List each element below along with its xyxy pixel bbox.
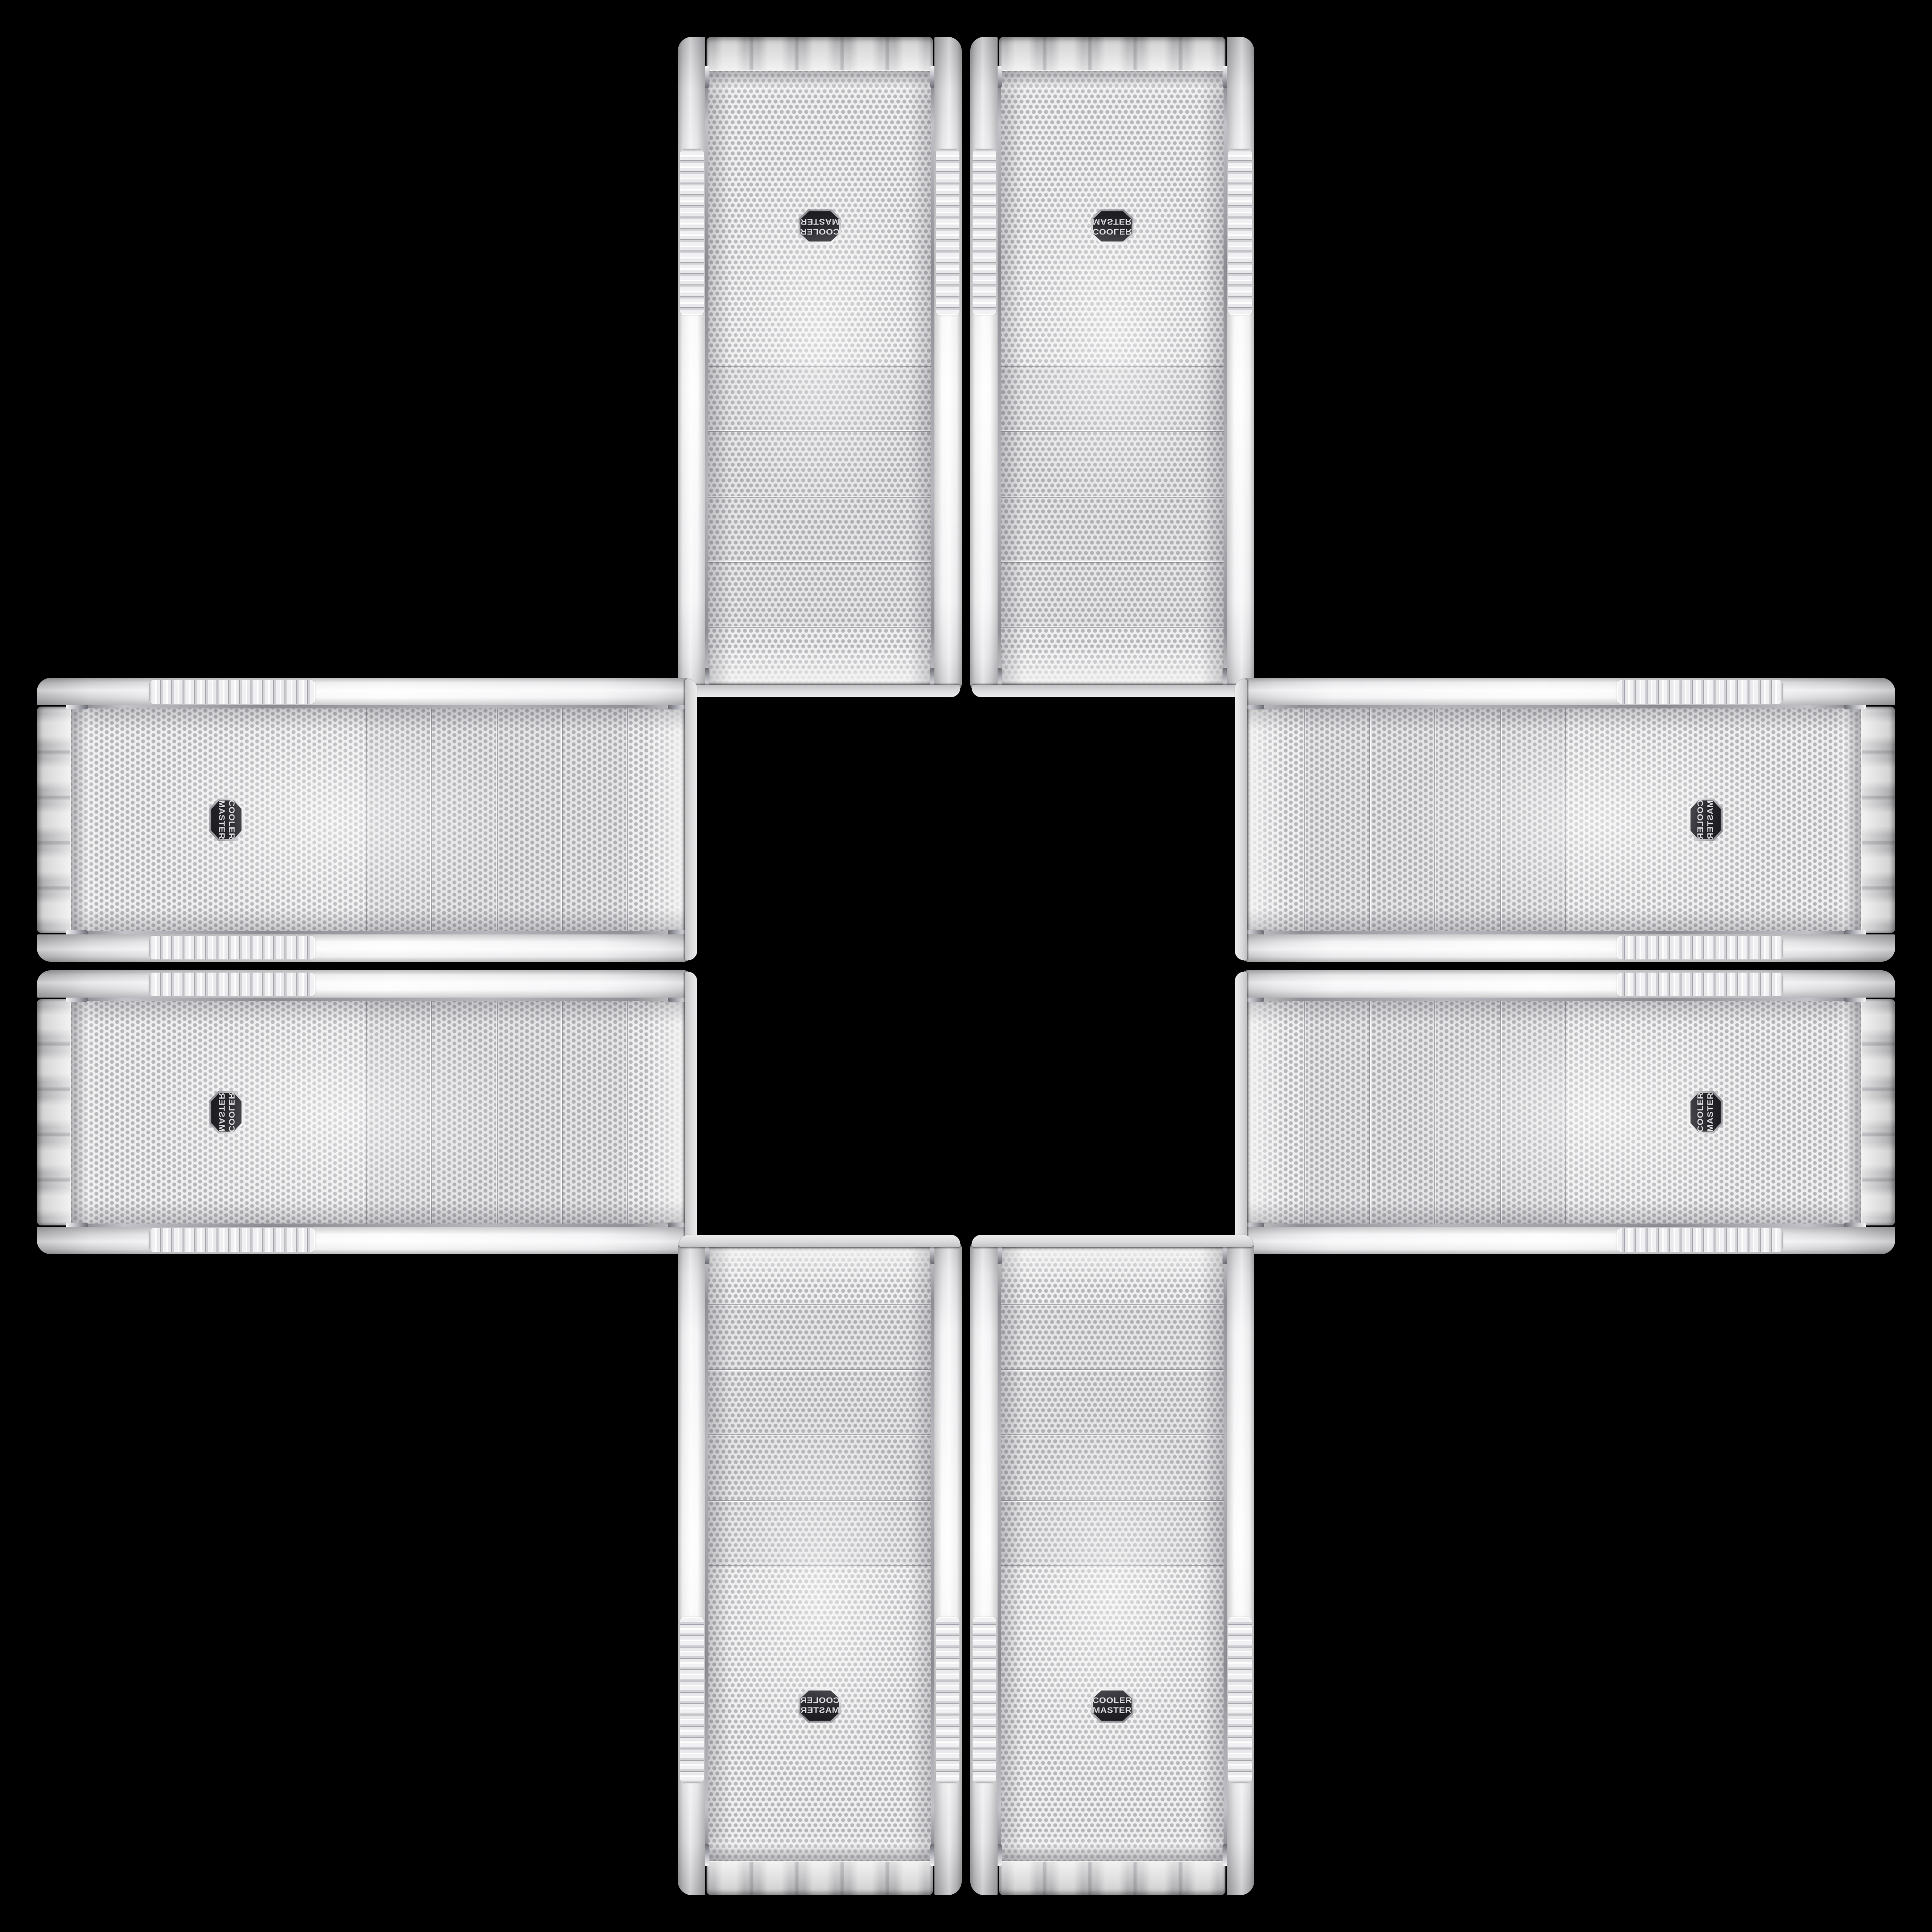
- faceted-outer-cap: [707, 1861, 933, 1895]
- logo-text-line1: COOLER: [227, 800, 235, 840]
- front-mesh-panel: COOLER MASTER: [1247, 708, 1861, 931]
- cooler-master-logo: COOLER MASTER: [209, 799, 243, 841]
- logo-text-line1: COOLER: [1092, 227, 1132, 235]
- cooler-master-logo: COOLER MASTER: [209, 1091, 243, 1133]
- grip-ribs-right: [680, 149, 704, 315]
- faceted-outer-cap: [37, 707, 71, 933]
- chrome-trim-groove-left: [1244, 705, 1864, 708]
- logo-text-line1: COOLER: [1696, 800, 1705, 840]
- logo-text-line2: MASTER: [1092, 217, 1132, 225]
- drive-bay-cover: [1304, 708, 1369, 931]
- logo-face: COOLER MASTER: [1093, 211, 1132, 241]
- side-rail-left: [37, 1227, 691, 1254]
- drive-bay-covers: [708, 1304, 931, 1566]
- chrome-trim-groove-right: [1244, 931, 1864, 934]
- chrome-trim-groove-right: [68, 998, 688, 1001]
- drive-bay-cover: [1369, 1001, 1435, 1224]
- mesh-roll-edge: [1247, 708, 1287, 931]
- drive-bay-covers: [708, 366, 931, 628]
- front-mesh-panel: COOLER MASTER: [708, 71, 931, 685]
- mesh-roll-edge-outer: [71, 1001, 98, 1224]
- grip-ribs-left: [936, 1617, 959, 1783]
- grip-ribs-right: [680, 1617, 704, 1783]
- grip-ribs-left: [936, 149, 959, 315]
- drive-bay-covers: [366, 708, 628, 931]
- drive-bay-cover: [1001, 1434, 1224, 1500]
- cooler-master-logo: COOLER MASTER: [1091, 209, 1133, 243]
- chrome-trim-groove-left: [998, 1244, 1001, 1864]
- drive-bay-cover: [708, 498, 931, 563]
- grip-ribs-right: [149, 936, 315, 959]
- chrome-trim-groove-left: [931, 68, 934, 688]
- faceted-outer-cap: [1861, 999, 1895, 1225]
- drive-bay-cover: [1001, 1304, 1224, 1369]
- drive-bay-cover: [708, 1434, 931, 1500]
- logo-face: COOLER MASTER: [211, 800, 241, 839]
- drive-bay-cover: [1001, 563, 1224, 629]
- drive-bay-cover: [1434, 708, 1500, 931]
- inner-end-band: [972, 1235, 1253, 1247]
- grip-ribs-left: [149, 1228, 315, 1252]
- mesh-roll-edge-outer: [1834, 708, 1861, 931]
- side-rail-left: [970, 1241, 998, 1895]
- grip-ribs-left: [973, 1617, 996, 1783]
- side-rail-right: [1241, 970, 1895, 998]
- drive-bay-cover: [708, 1369, 931, 1435]
- logo-text-line1: COOLER: [800, 1696, 840, 1705]
- chrome-trim-groove-left: [931, 1244, 934, 1864]
- drive-bay-cover: [1500, 708, 1566, 931]
- inner-end-band: [1235, 679, 1247, 960]
- faceted-outer-cap: [37, 999, 71, 1225]
- mesh-roll-edge: [1247, 1001, 1287, 1224]
- front-mesh-panel: COOLER MASTER: [1247, 1001, 1861, 1224]
- side-rail-left: [934, 1241, 962, 1895]
- drive-bay-cover: [708, 1500, 931, 1566]
- drive-bay-cover: [708, 1304, 931, 1369]
- grip-ribs-left: [149, 680, 315, 704]
- cooler-master-logo: COOLER MASTER: [1689, 1091, 1723, 1133]
- side-rail-right: [1227, 37, 1254, 691]
- side-rail-right: [678, 1241, 705, 1895]
- grip-ribs-left: [1617, 1228, 1783, 1252]
- faceted-outer-cap: [999, 37, 1225, 71]
- mesh-roll-edge-outer: [71, 708, 98, 931]
- drive-bay-cover: [1001, 1369, 1224, 1435]
- drive-bay-cover: [498, 708, 563, 931]
- grip-ribs-right: [1617, 973, 1783, 996]
- logo-face: COOLER MASTER: [211, 1093, 241, 1132]
- logo-text-line1: COOLER: [800, 227, 840, 235]
- mesh-roll-edge: [645, 1001, 685, 1224]
- mesh-roll-edge-outer: [1834, 1001, 1861, 1224]
- drive-bay-cover: [1500, 1001, 1566, 1224]
- drive-bay-cover: [498, 1001, 563, 1224]
- logo-text-line1: COOLER: [227, 1092, 235, 1132]
- side-rail-right: [1227, 1241, 1254, 1895]
- drive-bay-cover: [1304, 1001, 1369, 1224]
- drive-bay-cover: [433, 1001, 498, 1224]
- chrome-trim-groove-left: [68, 1224, 688, 1227]
- grip-ribs-right: [1228, 1617, 1252, 1783]
- case-left-bottom: COOLER MASTER: [37, 970, 697, 1254]
- mesh-roll-edge: [645, 708, 685, 931]
- drive-bay-cover: [1001, 498, 1224, 563]
- drive-bay-cover: [1369, 708, 1435, 931]
- drive-bay-cover: [366, 1001, 433, 1224]
- chrome-trim-groove-right: [705, 68, 708, 688]
- chrome-trim-groove-left: [68, 705, 688, 708]
- black-backdrop: COOLER MASTER: [0, 0, 1932, 1932]
- inner-end-band: [972, 685, 1253, 697]
- mesh-roll-edge: [708, 1247, 931, 1287]
- front-mesh-panel: COOLER MASTER: [71, 1001, 685, 1224]
- logo-text-line1: COOLER: [1696, 1092, 1705, 1132]
- mesh-roll-edge-outer: [708, 1834, 931, 1861]
- inner-end-band: [685, 972, 697, 1253]
- drive-bay-cover: [366, 708, 433, 931]
- cooler-master-logo: COOLER MASTER: [1091, 1689, 1133, 1723]
- side-rail-left: [37, 678, 691, 705]
- mesh-roll-edge: [1001, 1247, 1224, 1287]
- faceted-outer-cap: [1861, 707, 1895, 933]
- inner-end-band: [679, 1235, 960, 1247]
- chrome-trim-groove-right: [705, 1244, 708, 1864]
- drive-bay-cover: [1001, 433, 1224, 498]
- drive-bay-cover: [563, 1001, 629, 1224]
- logo-text-line2: MASTER: [1706, 1092, 1715, 1132]
- grip-ribs-right: [149, 973, 315, 996]
- logo-text-line1: COOLER: [1092, 1696, 1132, 1705]
- drive-bay-cover: [708, 366, 931, 433]
- side-rail-right: [1241, 934, 1895, 962]
- chrome-trim-groove-right: [1224, 1244, 1227, 1864]
- drive-bay-cover: [1001, 1500, 1224, 1566]
- faceted-outer-cap: [999, 1861, 1225, 1895]
- drive-bay-cover: [708, 563, 931, 629]
- chrome-trim-groove-left: [1244, 1224, 1864, 1227]
- logo-text-line2: MASTER: [217, 800, 225, 839]
- cooler-master-logo: COOLER MASTER: [799, 209, 841, 243]
- drive-bay-cover: [1001, 366, 1224, 433]
- logo-face: COOLER MASTER: [1690, 800, 1721, 839]
- front-mesh-panel: COOLER MASTER: [1001, 1247, 1224, 1861]
- side-rail-left: [934, 37, 962, 691]
- drive-bay-covers: [1001, 1304, 1224, 1566]
- mesh-roll-edge: [1001, 645, 1224, 685]
- mesh-roll-edge-outer: [1001, 71, 1224, 98]
- mesh-roll-edge-outer: [1001, 1834, 1224, 1861]
- cooler-master-logo: COOLER MASTER: [799, 1689, 841, 1723]
- side-rail-right: [678, 37, 705, 691]
- grip-ribs-left: [973, 149, 996, 315]
- side-rail-right: [37, 970, 691, 998]
- drive-bay-covers: [1304, 1001, 1566, 1224]
- mesh-roll-edge-outer: [708, 71, 931, 98]
- drive-bay-cover: [433, 708, 498, 931]
- logo-face: COOLER MASTER: [800, 1690, 839, 1721]
- mesh-roll-edge: [708, 645, 931, 685]
- case-right-top: COOLER MASTER: [1235, 678, 1895, 962]
- cooler-master-logo: COOLER MASTER: [1689, 799, 1723, 841]
- side-rail-left: [970, 37, 998, 691]
- logo-face: COOLER MASTER: [1093, 1690, 1132, 1721]
- case-bottom-left: COOLER MASTER: [678, 1235, 962, 1895]
- faceted-outer-cap: [707, 37, 933, 71]
- drive-bay-covers: [366, 1001, 628, 1224]
- front-mesh-panel: COOLER MASTER: [708, 1247, 931, 1861]
- logo-text-line2: MASTER: [1706, 800, 1715, 839]
- front-mesh-panel: COOLER MASTER: [1001, 71, 1224, 685]
- side-rail-left: [1241, 678, 1895, 705]
- logo-face: COOLER MASTER: [800, 211, 839, 241]
- inner-end-band: [679, 685, 960, 697]
- drive-bay-cover: [708, 433, 931, 498]
- logo-text-line2: MASTER: [217, 1092, 225, 1132]
- inner-end-band: [1235, 972, 1247, 1253]
- grip-ribs-right: [1228, 149, 1252, 315]
- logo-text-line2: MASTER: [1092, 1706, 1132, 1715]
- side-rail-left: [1241, 1227, 1895, 1254]
- case-bottom-right: COOLER MASTER: [970, 1235, 1254, 1895]
- case-right-bottom: COOLER MASTER: [1235, 970, 1895, 1254]
- chrome-trim-groove-right: [1244, 998, 1864, 1001]
- chrome-trim-groove-left: [998, 68, 1001, 688]
- case-top-right: COOLER MASTER: [970, 37, 1254, 697]
- grip-ribs-left: [1617, 680, 1783, 704]
- case-top-left: COOLER MASTER: [678, 37, 962, 697]
- side-rail-right: [37, 934, 691, 962]
- drive-bay-covers: [1304, 708, 1566, 931]
- grip-ribs-right: [1617, 936, 1783, 959]
- chrome-trim-groove-right: [68, 931, 688, 934]
- drive-bay-covers: [1001, 366, 1224, 628]
- case-left-top: COOLER MASTER: [37, 678, 697, 962]
- logo-text-line2: MASTER: [800, 1706, 839, 1715]
- logo-text-line2: MASTER: [800, 217, 839, 225]
- front-mesh-panel: COOLER MASTER: [71, 708, 685, 931]
- drive-bay-cover: [1434, 1001, 1500, 1224]
- chrome-trim-groove-right: [1224, 68, 1227, 688]
- inner-end-band: [685, 679, 697, 960]
- drive-bay-cover: [563, 708, 629, 931]
- logo-face: COOLER MASTER: [1690, 1093, 1721, 1132]
